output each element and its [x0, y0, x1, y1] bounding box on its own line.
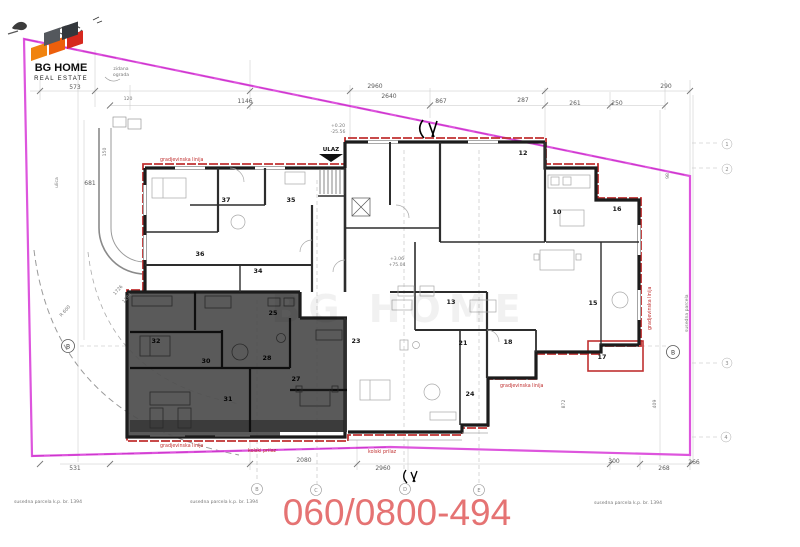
dim-left: 1726 — [112, 284, 124, 297]
access-label: kolski prilaz — [248, 448, 277, 454]
parcel-label: susedna parcela k.p. br. 1394 — [190, 499, 258, 505]
dim-left: 681 — [84, 180, 96, 187]
room-label: 37 — [222, 196, 231, 204]
dim-top: 2640 — [381, 93, 396, 100]
room-label: 35 — [287, 196, 296, 204]
room-label: 17 — [598, 353, 607, 361]
axis-label: 4 — [724, 435, 727, 441]
room-label: 12 — [519, 149, 528, 157]
room-label: 23 — [352, 337, 361, 345]
room-label: 28 — [263, 354, 272, 362]
dim-top: 287 — [517, 97, 529, 104]
dim-top: 867 — [435, 98, 447, 105]
dim-bottom: 2960 — [375, 465, 390, 472]
room-label: 15 — [589, 299, 598, 307]
street-label: ulica — [54, 177, 60, 188]
room-label: 21 — [459, 339, 468, 347]
fence-note: zidana — [113, 66, 128, 72]
dim-bottom: 531 — [69, 465, 81, 472]
parcel-label: susedna parcela k.p. br. 1394 — [594, 500, 662, 506]
dim-top: 573 — [69, 84, 81, 91]
axis-label: B — [255, 487, 259, 493]
dim-top: 261 — [569, 100, 581, 107]
dim-bottom: 268 — [658, 465, 670, 472]
parcel-label-side: susedna parcela — [684, 294, 690, 332]
dim-top: 290 — [660, 83, 672, 90]
legend-boxes — [113, 117, 141, 129]
building-line-label: gradjevinska linija — [160, 157, 204, 163]
dim-left: 150 — [102, 148, 108, 157]
entrance-label: ULAZ — [323, 147, 340, 153]
dim-bottom: 266 — [688, 459, 700, 466]
room-label: 18 — [504, 338, 513, 346]
dim-bottom: 300 — [608, 458, 620, 465]
dim-left: R 600 — [59, 304, 72, 318]
axis-label: 3 — [725, 361, 728, 367]
site-plan-drawing: 37 35 36 34 25 32 30 28 27 31 23 21 18 2… — [0, 0, 800, 547]
bg-home-logo: BG HOME REAL ESTATE — [31, 22, 88, 83]
dim-right: 872 — [561, 400, 567, 409]
axis-label: B — [671, 350, 675, 357]
level-mark: -25.56 — [331, 129, 346, 135]
fence-note: ograda — [113, 72, 129, 78]
center-watermark: BG HOME — [271, 287, 528, 331]
logo-subtitle: REAL ESTATE — [34, 76, 88, 82]
axis-label: 2 — [725, 167, 728, 173]
dim-top: 250 — [611, 100, 623, 107]
building-line-label: gradjevinska linija — [160, 443, 204, 449]
level-mark: +75.04 — [388, 262, 405, 268]
floor-plan-page: 37 35 36 34 25 32 30 28 27 31 23 21 18 2… — [0, 0, 800, 547]
level-mark: +3.06 — [390, 256, 404, 262]
axis-label: 1 — [725, 142, 728, 148]
dim-top: 1146 — [237, 98, 252, 105]
building-line-label: gradjevinska linija — [647, 286, 653, 330]
axis-label: B — [66, 344, 70, 351]
level-mark: +0.20 — [331, 123, 345, 129]
parcel-label: susedna parcela k.p. br. 1394 — [14, 499, 82, 505]
entrance-arrow-icon — [319, 154, 343, 162]
room-label: 34 — [254, 267, 263, 275]
building-line-label: gradjevinska linija — [500, 383, 544, 389]
dim-top: 2960 — [367, 83, 382, 90]
room-label: 10 — [553, 208, 562, 216]
access-label: kolski prilaz — [368, 449, 397, 455]
room-label: 16 — [613, 205, 622, 213]
room-label: 30 — [202, 357, 211, 365]
room-label: 24 — [466, 390, 475, 398]
entrance: ULAZ — [319, 147, 343, 162]
phone-number: 060/0800-494 — [283, 492, 511, 533]
room-label: 31 — [224, 395, 233, 403]
room-label: 32 — [152, 337, 161, 345]
dim-top: 120 — [124, 96, 133, 102]
dim-right: 98 — [665, 173, 671, 179]
logo-title: BG HOME — [35, 62, 88, 74]
room-label: 27 — [292, 375, 301, 383]
dim-right: 409 — [652, 400, 658, 409]
room-label: 36 — [196, 250, 205, 258]
dim-bottom: 2080 — [296, 457, 311, 464]
